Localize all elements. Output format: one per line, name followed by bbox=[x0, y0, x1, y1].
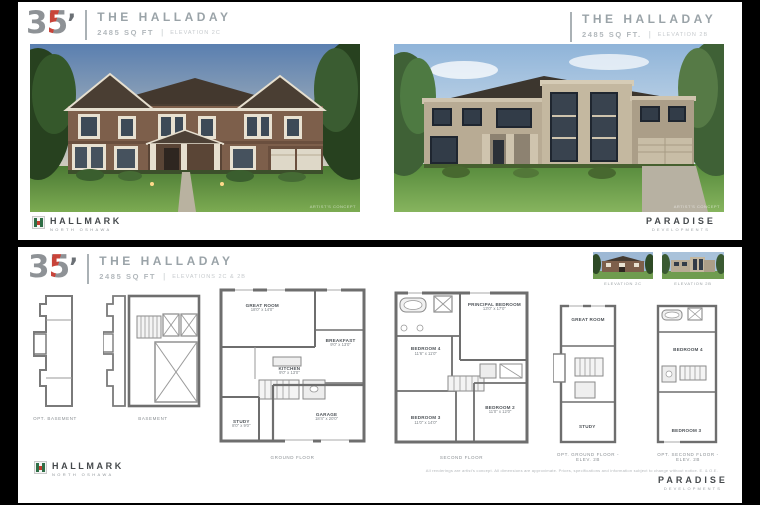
model-name: THE HALLADAY bbox=[99, 254, 246, 268]
hallmark-tagline: NORTH OSHAWA bbox=[50, 227, 122, 232]
paradise-tagline: DEVELOPMENTS bbox=[658, 486, 728, 491]
paradise-name: PARADISE bbox=[646, 216, 716, 226]
plan-basement: BASEMENT bbox=[103, 290, 203, 426]
room-label-principal-bedroom: PRINCIPAL BEDROOM 13'0" x 17'0" bbox=[459, 302, 531, 312]
plan-second-floor: PRINCIPAL BEDROOM 13'0" x 17'0" BEDROOM … bbox=[390, 288, 533, 460]
house-illustration-traditional bbox=[30, 44, 360, 212]
brochure-page: 35’ THE HALLADAY 2485 SQ FT | ELEVATION … bbox=[0, 0, 760, 505]
plan-caption: BASEMENT bbox=[103, 416, 203, 421]
rendering-elevation-2b: ARTIST'S CONCEPT bbox=[394, 44, 724, 212]
bottom-header-text: THE HALLADAY 2485 SQ FT | ELEVATIONS 2C … bbox=[99, 252, 246, 281]
model-name: THE HALLADAY bbox=[582, 12, 716, 26]
hallmark-h-icon bbox=[34, 461, 47, 474]
hallmark-logo: HALLMARK NORTH OSHAWA bbox=[32, 216, 122, 232]
thumbnail-image bbox=[662, 252, 724, 279]
room-label-study: STUDY 8'0" x 9'0" bbox=[221, 419, 261, 429]
plan-opt-second-floor: BEDROOM 4 BEDROOM 3 OPT. SECOND FLOOR - … bbox=[650, 298, 726, 460]
rendering-elevation-2c: ARTIST'S CONCEPT bbox=[30, 44, 360, 212]
room-label-great-room: GREAT ROOM bbox=[560, 317, 616, 322]
hallmark-logo: HALLMARK NORTH OSHAWA bbox=[34, 461, 124, 477]
top-left-header-text: THE HALLADAY 2485 SQ FT | ELEVATION 2C bbox=[97, 8, 231, 37]
hallmark-h-icon bbox=[32, 216, 45, 229]
plan-opt-ground-floor: GREAT ROOM STUDY OPT. GROUND FLOOR - ELE… bbox=[553, 298, 623, 460]
room-label-study: STUDY bbox=[563, 424, 612, 429]
room-label-bedroom-2: BEDROOM 2 11'0" x 12'0" bbox=[473, 405, 527, 415]
room-label-breakfast: BREAKFAST 9'0" x 13'0" bbox=[314, 338, 367, 348]
paradise-tagline: DEVELOPMENTS bbox=[646, 227, 716, 232]
plan-caption: OPT. SECOND FLOOR - ELEV. 2B bbox=[650, 452, 726, 462]
sqft-label: 2485 SQ FT. bbox=[582, 30, 642, 39]
plan-caption: OPT. GROUND FLOOR - ELEV. 2B bbox=[553, 452, 623, 462]
header-divider bbox=[87, 254, 89, 284]
room-label-bedroom-4: BEDROOM 4 bbox=[658, 347, 719, 352]
pipe-separator: | bbox=[163, 272, 165, 281]
hallmark-name: HALLMARK bbox=[50, 216, 122, 226]
hallmark-name: HALLMARK bbox=[52, 461, 124, 471]
logo-apostrophe: ’ bbox=[67, 9, 75, 37]
disclaimer-text: All renderings are artist's concept. All… bbox=[398, 468, 718, 473]
house-illustration-contemporary bbox=[394, 44, 724, 212]
thumbnail-caption: ELEVATION 2B bbox=[662, 281, 724, 286]
plan-caption: OPT. BASEMENT bbox=[32, 416, 78, 421]
logo-35-digits: 35 bbox=[28, 249, 69, 285]
room-label-bedroom-4: BEDROOM 4 11'6" x 11'0" bbox=[399, 346, 453, 356]
logo-apostrophe: ’ bbox=[69, 253, 77, 281]
logo-35-digits: 35 bbox=[26, 5, 67, 41]
plan-opt-basement-strip: OPT. BASEMENT bbox=[32, 290, 78, 426]
watermark: ARTIST'S CONCEPT bbox=[674, 204, 720, 209]
sqft-label: 2485 SQ FT bbox=[97, 28, 154, 37]
header-divider bbox=[85, 10, 87, 40]
pipe-separator: | bbox=[161, 28, 163, 37]
pipe-separator: | bbox=[649, 30, 651, 39]
header-divider bbox=[570, 12, 572, 42]
bottom-header: 35’ THE HALLADAY 2485 SQ FT | ELEVATIONS… bbox=[28, 252, 246, 284]
room-label-kitchen: KITCHEN 9'0" x 13'0" bbox=[262, 366, 318, 376]
room-label-bedroom-3: BEDROOM 3 bbox=[656, 428, 717, 433]
paradise-logo: PARADISE DEVELOPMENTS bbox=[658, 475, 728, 491]
top-right-header-text: THE HALLADAY 2485 SQ FT. | ELEVATION 2B bbox=[582, 10, 716, 39]
plan-caption: GROUND FLOOR bbox=[215, 455, 370, 460]
top-panel: 35’ THE HALLADAY 2485 SQ FT | ELEVATION … bbox=[18, 2, 742, 240]
elevation-label: ELEVATION 2B bbox=[658, 32, 708, 38]
thumbnail-elevation-2c: ELEVATION 2C bbox=[593, 252, 653, 286]
plan-ground-floor: GREAT ROOM 18'0" x 14'0" BREAKFAST 9'0" … bbox=[215, 285, 370, 461]
plan-caption: SECOND FLOOR bbox=[390, 455, 533, 460]
elevation-label: ELEVATIONS 2C & 2B bbox=[172, 274, 246, 280]
sqft-label: 2485 SQ FT bbox=[99, 272, 156, 281]
watermark: ARTIST'S CONCEPT bbox=[310, 204, 356, 209]
bottom-panel: 35’ THE HALLADAY 2485 SQ FT | ELEVATIONS… bbox=[18, 247, 742, 503]
paradise-name: PARADISE bbox=[658, 475, 728, 485]
top-right-header: THE HALLADAY 2485 SQ FT. | ELEVATION 2B bbox=[570, 10, 716, 42]
room-label-bedroom-3: BEDROOM 3 11'0" x 14'0" bbox=[399, 415, 453, 425]
logo-35ft: 35’ bbox=[28, 252, 77, 282]
thumbnail-elevation-2b: ELEVATION 2B bbox=[662, 252, 724, 286]
thumbnail-caption: ELEVATION 2C bbox=[593, 281, 653, 286]
top-left-header: 35’ THE HALLADAY 2485 SQ FT | ELEVATION … bbox=[26, 8, 232, 40]
thumbnail-image bbox=[593, 252, 653, 279]
hallmark-tagline: NORTH OSHAWA bbox=[52, 472, 124, 477]
room-label-great-room: GREAT ROOM 18'0" x 14'0" bbox=[227, 303, 297, 313]
model-name: THE HALLADAY bbox=[97, 10, 231, 24]
logo-35ft: 35’ bbox=[26, 8, 75, 38]
paradise-logo: PARADISE DEVELOPMENTS bbox=[646, 216, 716, 232]
room-label-garage: GARAGE 18'4" x 20'0" bbox=[289, 412, 363, 422]
elevation-label: ELEVATION 2C bbox=[170, 30, 221, 36]
